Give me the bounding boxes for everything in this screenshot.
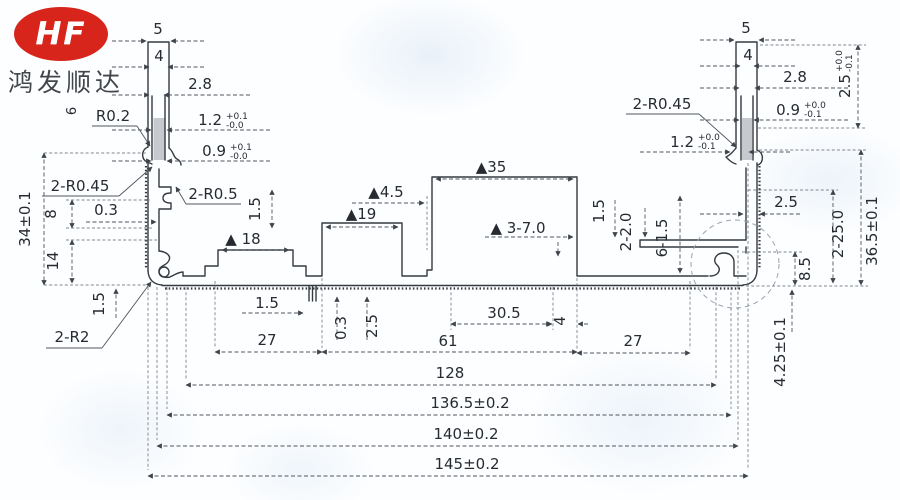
- drawing-sheet: HF 鸿发顺达: [0, 0, 900, 500]
- dim-right-top-2-5-plus: +0.0: [835, 50, 845, 72]
- dim-center-1-5: 1.5: [255, 294, 279, 312]
- dim-left-fin-4: 4: [154, 47, 164, 65]
- dim-left-slot-1-2-minus: -0.0: [226, 121, 244, 131]
- dim-128: 128: [436, 364, 465, 382]
- dim-8-5: 8.5: [796, 257, 814, 281]
- dim-bottom-left-1-5: 1.5: [90, 292, 108, 316]
- technical-drawing: 5 4 2.8 R0.2 1.2 +0.1 -0.0 0.9 +0.1 -0.0…: [0, 0, 900, 500]
- dim-left-fin-5: 5: [153, 20, 163, 38]
- dim-145: 145±0.2: [434, 455, 499, 473]
- dim-center-2-5: 2.5: [363, 314, 381, 338]
- dim-left-2-r05: 2-R0.5: [188, 185, 237, 203]
- dim-right-slot-1-2-minus: -0.1: [698, 142, 716, 152]
- dim-right-top-2-5: 2.5: [836, 74, 854, 98]
- dim-136-5: 136.5±0.2: [430, 394, 509, 412]
- dim-right-2-r045: 2-R0.45: [633, 95, 692, 113]
- dim-left-pad-1-5: 1.5: [246, 197, 264, 221]
- detail-circle: [691, 220, 779, 308]
- dim-left-0-3: 0.3: [94, 201, 118, 219]
- dim-right-fin-5: 5: [741, 19, 751, 37]
- dim-right-slot-0-9-minus: -0.1: [804, 110, 822, 120]
- dim-27-left: 27: [257, 331, 276, 349]
- dim-right-1-5: 1.5: [590, 199, 608, 223]
- dim-right-fin-2-8: 2.8: [783, 68, 807, 86]
- dim-height-14: 14: [44, 251, 62, 270]
- dimension-labels: 5 4 2.8 R0.2 1.2 +0.1 -0.0 0.9 +0.1 -0.0…: [16, 19, 881, 473]
- dim-gap-4-5: ▲4.5: [368, 183, 403, 201]
- dim-pad-18: ▲ 18: [225, 230, 260, 248]
- dim-right-slot-0-9: 0.9: [776, 101, 800, 119]
- dim-radius-r02: R0.2: [96, 107, 130, 125]
- left-screw-port: [159, 267, 169, 277]
- dim-slots-3-7-0: ▲ 3-7.0: [490, 219, 545, 237]
- left-fin-slot: [154, 118, 165, 160]
- dim-61: 61: [438, 332, 457, 350]
- dim-left-slot-1-2: 1.2: [198, 111, 222, 129]
- dim-right-top-2-5-group: 2.5 +0.0 -0.1: [835, 50, 855, 98]
- dim-4-25: 4.25±0.1: [771, 317, 789, 387]
- dim-height-8: 8: [42, 209, 60, 219]
- dim-left-slot-0-9-minus: -0.0: [230, 152, 248, 162]
- profile-outline: [143, 42, 779, 308]
- dim-partial-6: 6: [65, 107, 80, 115]
- dim-left-2-r045: 2-R0.45: [51, 177, 110, 195]
- dim-pad-35: ▲35: [476, 158, 507, 176]
- dim-right-top-2-5-minus: -0.1: [845, 54, 855, 72]
- right-fin-slot: [742, 118, 752, 160]
- dim-140: 140±0.2: [433, 425, 498, 443]
- dim-30-5: 30.5: [487, 304, 520, 322]
- dim-2-2-0: 2-2.0: [617, 213, 635, 252]
- dim-27-right: 27: [623, 332, 642, 350]
- dim-pad-19: ▲19: [346, 205, 377, 223]
- dim-right-slot-1-2: 1.2: [670, 133, 694, 151]
- dim-left-slot-0-9: 0.9: [202, 142, 226, 160]
- dim-right-wall-2-5: 2.5: [774, 193, 798, 211]
- dim-center-0-3: 0.3: [332, 316, 350, 340]
- dim-corner-2-r2: 2-R2: [55, 328, 90, 346]
- dim-right-fin-4: 4: [743, 46, 753, 64]
- dim-left-fin-2-8: 2.8: [188, 75, 212, 93]
- dim-6-1-5: 6-1.5: [653, 219, 671, 258]
- dim-height-34: 34±0.1: [16, 191, 34, 247]
- dim-height-36-5: 36.5±0.1: [863, 196, 881, 266]
- dim-4: 4: [551, 316, 569, 326]
- dim-2-25-0: 2-25.0: [829, 210, 847, 258]
